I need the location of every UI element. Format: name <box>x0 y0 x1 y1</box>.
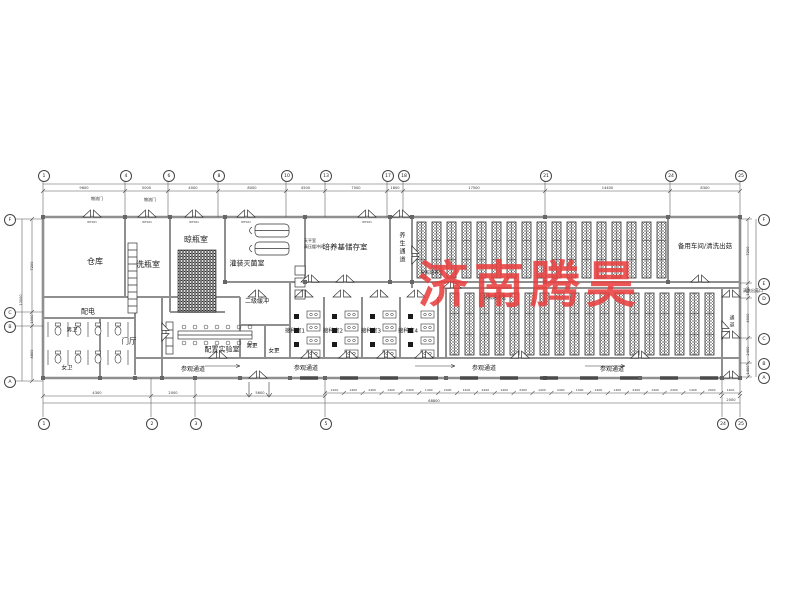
dim-label: 1400 <box>387 388 395 392</box>
door-tag: WT021 <box>241 220 251 224</box>
dim-label: 2400 <box>708 388 716 392</box>
dim-label: 5000 <box>142 186 151 190</box>
double-door-symbol <box>333 290 351 297</box>
dim-label: 1000 <box>30 314 34 323</box>
dim-label: 1400 <box>727 388 735 392</box>
dim-label: 4500 <box>301 186 310 190</box>
dim-label: 17500 <box>468 186 479 190</box>
dim-label: 2400 <box>368 388 376 392</box>
door-tag: WT021 <box>87 220 97 224</box>
double-door-symbol <box>407 290 425 297</box>
grid-bubble: 25 <box>735 170 747 182</box>
floorplan-linework <box>0 0 800 600</box>
grid-bubble: 10 <box>281 170 293 182</box>
dim-total: 13000 <box>19 294 23 305</box>
dim-label: 4000 <box>188 186 197 190</box>
double-door-symbol <box>722 290 740 297</box>
dim-label: 2400 <box>406 388 414 392</box>
grid-bubble: A <box>4 376 16 388</box>
grid-bubble: 4 <box>120 170 132 182</box>
grid-bubble: 5 <box>320 418 332 430</box>
double-door-symbol <box>370 290 388 297</box>
dim-label: 2400 <box>632 388 640 392</box>
grid-bubble: 24 <box>665 170 677 182</box>
dim-label: 1400 <box>538 388 546 392</box>
dim-label: 1400 <box>500 388 508 392</box>
dim-label: 4300 <box>92 391 101 395</box>
dim-label: 1400 <box>651 388 659 392</box>
grid-bubble: 24 <box>717 418 729 430</box>
grid-bubble: 1 <box>38 170 50 182</box>
floorplan-canvas: 14681013171821242512352425FCBAFEDCBA9600… <box>0 0 800 600</box>
dim-label: 2400 <box>595 388 603 392</box>
grid-bubble: 8 <box>213 170 225 182</box>
grid-bubble: F <box>4 214 16 226</box>
grid-bubble: B <box>4 321 16 333</box>
dim-label: 7200 <box>30 261 34 270</box>
dim-label: 2100 <box>331 388 339 392</box>
grid-bubble: C <box>4 307 16 319</box>
door-tag: WT021 <box>189 220 199 224</box>
grid-bubble: E <box>758 278 770 290</box>
grid-bubble: 25 <box>735 418 747 430</box>
dim-label: 1400 <box>349 388 357 392</box>
door-tag: WT021 <box>362 220 372 224</box>
dim-label: 1400 <box>689 388 697 392</box>
grid-bubble: C <box>758 333 770 345</box>
dim-label: 4800 <box>30 349 34 358</box>
dim-label: 5600 <box>255 391 264 395</box>
dim-total: 68800 <box>428 399 439 403</box>
double-door-symbol <box>691 275 709 282</box>
grid-bubble: B <box>758 358 770 370</box>
dim-label: 2400 <box>557 388 565 392</box>
dim-label: 1800 <box>390 186 399 190</box>
door-tag: WT021 <box>142 220 152 224</box>
dim-label: 8000 <box>247 186 256 190</box>
grid-bubble: 21 <box>540 170 552 182</box>
grid-bubble: 1 <box>38 418 50 430</box>
dim-label: 2400 <box>670 388 678 392</box>
grid-bubble: D <box>758 293 770 305</box>
grid-bubble: 13 <box>320 170 332 182</box>
grid-bubble: 3 <box>190 418 202 430</box>
grid-bubble: 6 <box>163 170 175 182</box>
dim-label: 8300 <box>700 186 709 190</box>
grid-bubble: 17 <box>382 170 394 182</box>
dim-label: 2000 <box>726 398 735 402</box>
dim-label: 1400 <box>576 388 584 392</box>
dim-label: 2400 <box>519 388 527 392</box>
grid-bubble: 2 <box>146 418 158 430</box>
double-door-symbol <box>248 290 266 297</box>
generated-linework <box>41 210 742 380</box>
dim-label: 2400 <box>444 388 452 392</box>
dim-label: 7500 <box>351 186 360 190</box>
dim-label: 2400 <box>482 388 490 392</box>
dim-label: 4000 <box>746 313 750 322</box>
grid-bubble: A <box>758 372 770 384</box>
dim-label: 1400 <box>463 388 471 392</box>
grid-bubble: F <box>758 214 770 226</box>
dim-label: 1400 <box>425 388 433 392</box>
dim-label: 2000 <box>168 391 177 395</box>
dim-label: 1400 <box>746 365 750 374</box>
dim-label: 1500 <box>746 286 750 295</box>
dim-label: 9600 <box>79 186 88 190</box>
dim-label: 1400 <box>614 388 622 392</box>
double-door-symbol <box>336 275 354 282</box>
grid-bubble: 18 <box>398 170 410 182</box>
equipment <box>128 224 625 397</box>
dim-label: 2400 <box>746 346 750 355</box>
double-door-symbol <box>209 351 227 358</box>
dim-label: 7200 <box>746 246 750 255</box>
dim-label: 14400 <box>602 186 613 190</box>
